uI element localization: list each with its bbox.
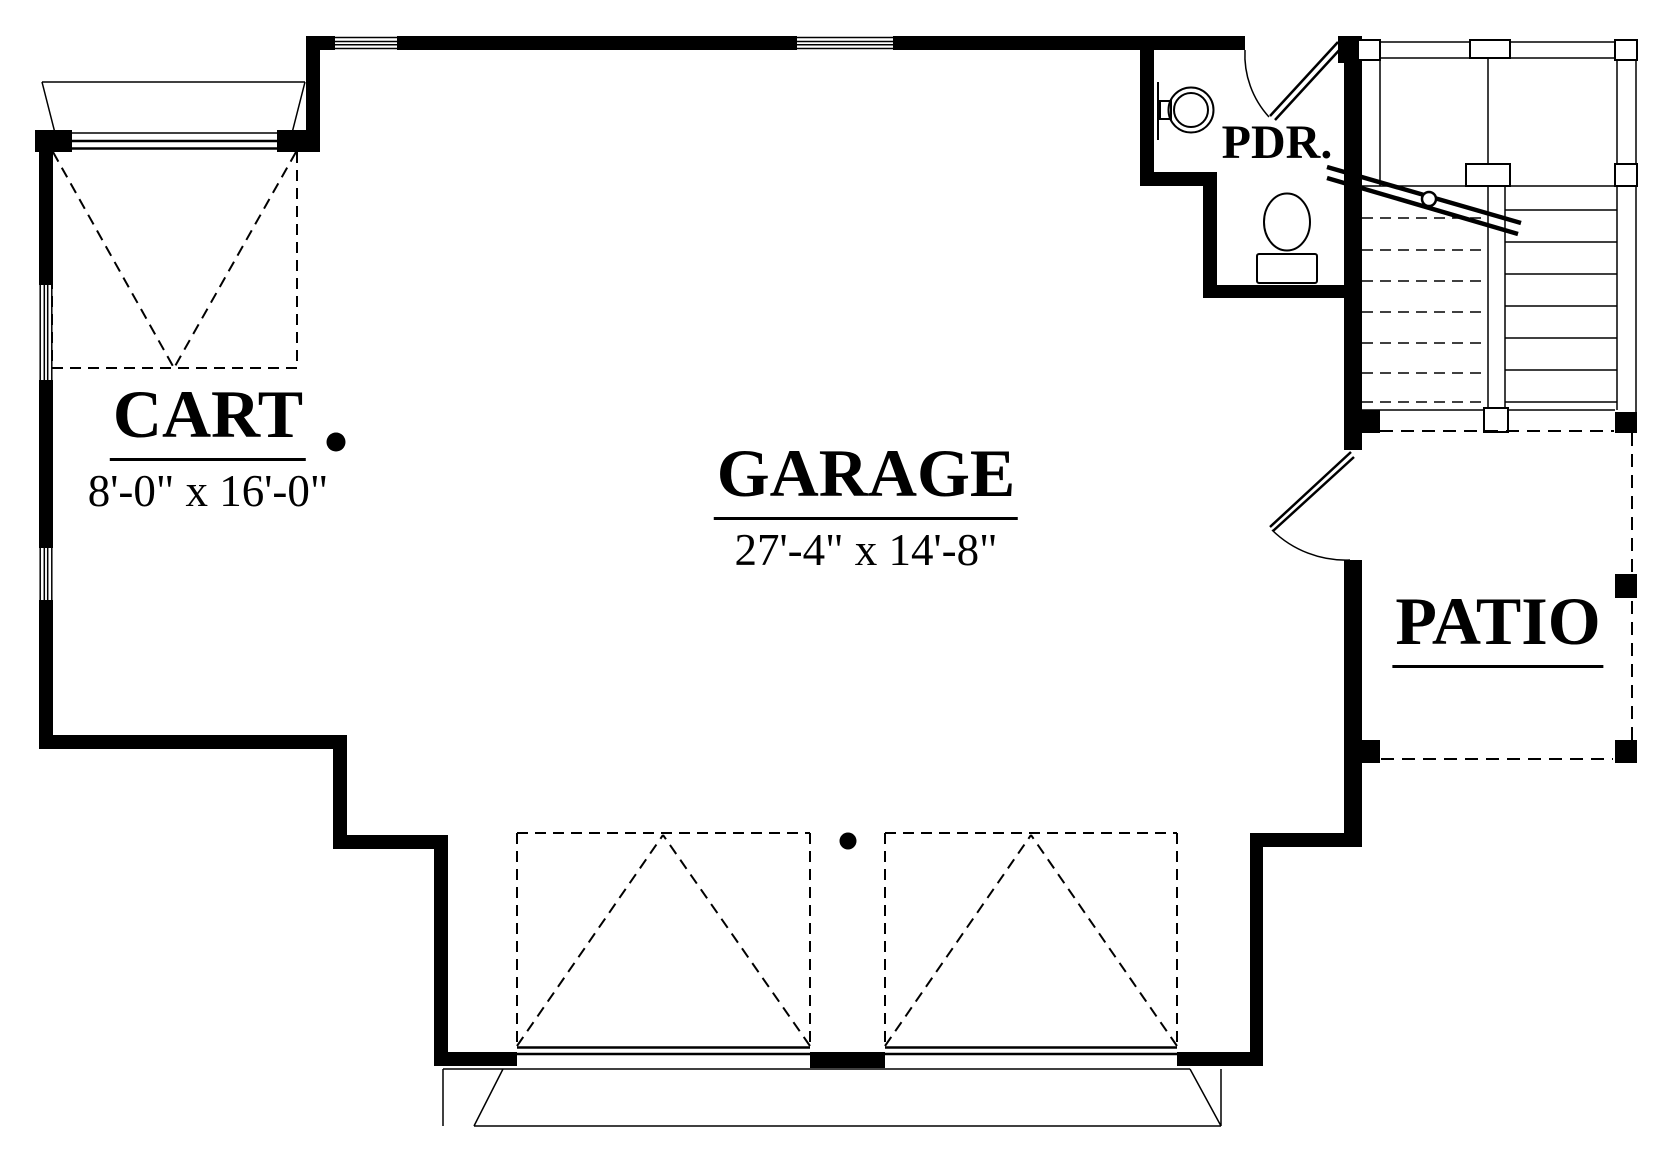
- patio-door-arc: [1272, 530, 1350, 560]
- cart-door-swing: [52, 152, 297, 368]
- garage-doors: [443, 833, 1221, 1126]
- toilet-tank-icon: [1257, 254, 1317, 283]
- handrail-volute: [1422, 192, 1436, 206]
- garage-door-2-swing: [885, 833, 1177, 1046]
- garage-door-2-panel: [885, 1048, 1177, 1055]
- garage-door-1-panel: [517, 1048, 810, 1055]
- garage-room-name: GARAGE: [714, 439, 1018, 520]
- pdr-label: PDR.: [1222, 119, 1333, 167]
- floor-plan-drawing: [0, 0, 1676, 1150]
- walls: [35, 36, 1362, 1068]
- cart-door-panel: [72, 141, 277, 149]
- patio-door-leaf: [1270, 452, 1354, 531]
- sink-icon: [1169, 88, 1214, 133]
- cart-label: CART 8'-0" x 16'-0": [88, 380, 328, 514]
- cart-apron: [42, 82, 305, 133]
- stair-treads-down: [1505, 210, 1617, 402]
- garage-door-1-swing: [517, 833, 810, 1046]
- patio-post: [1359, 410, 1380, 433]
- garage-label: GARAGE 27'-4" x 14'-8": [714, 439, 1018, 573]
- column-dot-cart: [327, 433, 346, 452]
- stair-treads-up: [1362, 218, 1488, 402]
- pdr-door-arc: [1245, 50, 1269, 117]
- pdr-door-leaf: [1270, 42, 1343, 120]
- column-dot-garage: [840, 833, 857, 850]
- driveway-apron: [443, 1069, 1221, 1126]
- cart-room-name: CART: [110, 380, 306, 461]
- pdr-room-name: PDR.: [1222, 119, 1333, 167]
- patio-post: [1615, 740, 1637, 763]
- cart-room-dims: 8'-0" x 16'-0": [88, 469, 328, 514]
- patio-label: PATIO: [1392, 587, 1603, 668]
- patio-post: [1615, 412, 1637, 433]
- patio-room-name: PATIO: [1392, 587, 1603, 668]
- patio-post: [1615, 574, 1637, 598]
- toilet-bowl-icon: [1264, 194, 1310, 251]
- garage-room-dims: 27'-4" x 14'-8": [714, 528, 1018, 573]
- floor-plan-sheet: CART 8'-0" x 16'-0" GARAGE 27'-4" x 14'-…: [0, 0, 1676, 1150]
- cart-garage-door: [42, 82, 305, 368]
- stairs: [1358, 40, 1637, 432]
- patio-post: [1360, 740, 1380, 763]
